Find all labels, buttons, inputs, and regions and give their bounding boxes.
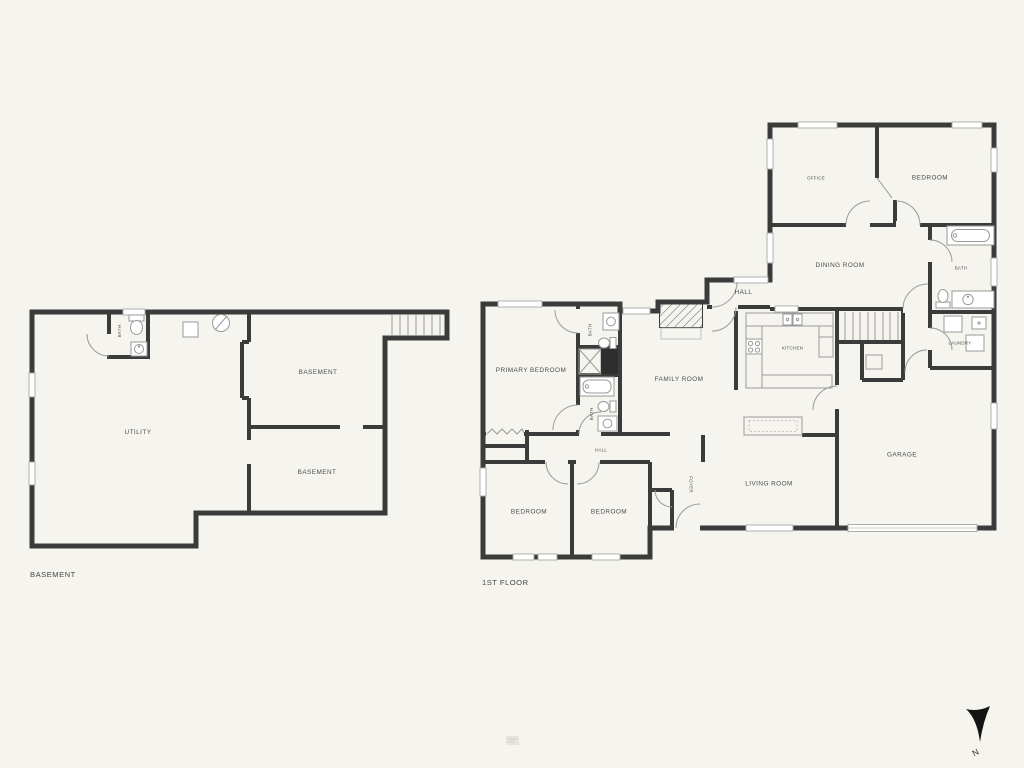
room-label-bedroom-middle: BEDROOM (591, 509, 627, 516)
electrical-panel-icon (213, 315, 230, 332)
sink-icon (952, 291, 994, 308)
first-floor-plan: PRIMARY BEDROOM BATH BATH FAMILY ROOM HA… (480, 122, 997, 587)
room-label-bath-upper-right: BATH (955, 266, 968, 271)
kitchen-fixtures (746, 313, 833, 388)
bathtub-icon (580, 377, 614, 396)
basement-stairs-icon (392, 314, 440, 336)
stove-icon (746, 339, 762, 354)
toilet-icon (598, 401, 616, 412)
room-label-basement-bath: BATH (117, 325, 122, 338)
washer-dryer-icons (944, 316, 986, 351)
room-label-basement-a: BASEMENT (299, 369, 338, 376)
room-label-utility: UTILITY (125, 429, 152, 436)
first-floor-windows (480, 122, 997, 560)
compass: N (966, 706, 990, 758)
first-floor-plan-title: 1ST FLOOR (482, 578, 529, 587)
bathtub-icon (947, 226, 994, 245)
watermark (506, 736, 519, 745)
kitchen-sink-icon (783, 314, 802, 325)
basement-plan: UTILITY BASEMENT BASEMENT BATH BASEMENT (29, 309, 447, 579)
room-label-hall-bedrooms: HALL (595, 448, 607, 453)
sink-icon (131, 342, 147, 356)
north-arrow-icon (966, 706, 990, 742)
first-floor-interior-walls (483, 125, 994, 557)
shower-icon (579, 349, 601, 374)
toilet-icon (936, 290, 950, 309)
fridge-icon (819, 337, 833, 357)
vanity-sink-icon (598, 416, 617, 431)
toilet-icon (129, 315, 144, 335)
room-label-garage: GARAGE (887, 452, 917, 459)
compass-label: N (970, 746, 981, 758)
vanity-sink-icon (603, 313, 619, 330)
room-label-laundry: LAUNDRY (948, 341, 971, 346)
room-label-dining-room: DINING ROOM (816, 262, 865, 269)
basement-interior-walls (107, 312, 385, 513)
room-label-basement-b: BASEMENT (298, 469, 337, 476)
basement-stairs-down-icon (660, 304, 703, 340)
primary-bath-fixtures (579, 313, 619, 431)
room-label-foyer: FOYER (689, 476, 694, 493)
room-label-kitchen: KITCHEN (782, 346, 803, 351)
floorplan-image: UTILITY BASEMENT BASEMENT BATH BASEMENT (0, 0, 1024, 768)
water-heater-icon (866, 355, 882, 369)
fireplace-icon (744, 417, 802, 435)
room-label-bath-primary: BATH (588, 324, 593, 337)
room-label-family-room: FAMILY ROOM (655, 376, 704, 383)
stairs-up-icon (845, 312, 898, 340)
water-heater-icon (183, 322, 198, 337)
room-label-hall-upper: HALL (735, 289, 753, 296)
room-label-bath-hall: BATH (589, 408, 594, 421)
basement-plan-title: BASEMENT (30, 570, 76, 579)
room-label-bedroom-left: BEDROOM (511, 509, 547, 516)
floorplan-page: UTILITY BASEMENT BASEMENT BATH BASEMENT (0, 0, 1024, 768)
room-label-office: OFFICE (807, 176, 825, 181)
first-floor-exterior-walls (483, 125, 994, 557)
room-label-bedroom-upper: BEDROOM (912, 175, 948, 182)
garage-door (848, 525, 977, 532)
first-floor-door-gaps (486, 221, 934, 532)
toilet-icon (599, 338, 617, 349)
chase-block (601, 349, 618, 374)
room-label-living-room: LIVING ROOM (745, 481, 793, 488)
room-label-primary-bedroom: PRIMARY BEDROOM (496, 367, 566, 374)
basement-door-gaps (246, 423, 363, 464)
bath-door-arc (87, 334, 109, 356)
